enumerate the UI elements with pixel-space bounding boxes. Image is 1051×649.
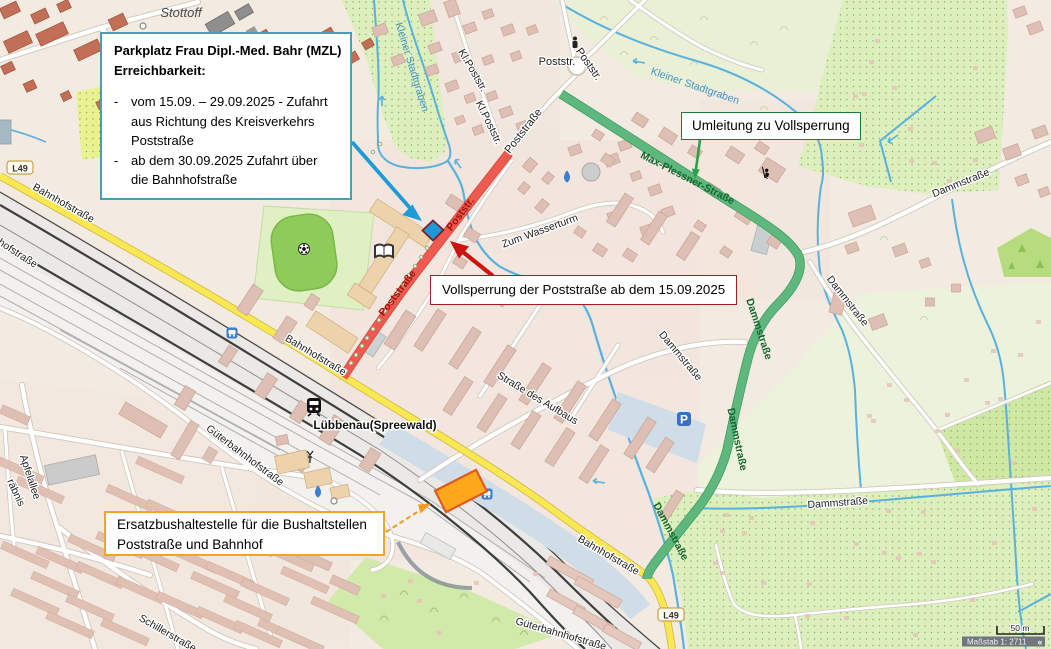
svg-text:L49: L49 bbox=[663, 611, 679, 621]
svg-text:Lübbenau(Spreewald): Lübbenau(Spreewald) bbox=[313, 418, 436, 432]
svg-text:Maßstab 1: 2711: Maßstab 1: 2711 bbox=[967, 638, 1027, 647]
svg-text:«: « bbox=[1037, 637, 1042, 647]
svg-text:P: P bbox=[680, 413, 688, 427]
svg-text:Stottoff: Stottoff bbox=[160, 5, 203, 20]
svg-text:Poststr.: Poststr. bbox=[539, 56, 576, 68]
svg-text:50 m: 50 m bbox=[1011, 623, 1030, 633]
svg-text:L49: L49 bbox=[12, 164, 28, 174]
